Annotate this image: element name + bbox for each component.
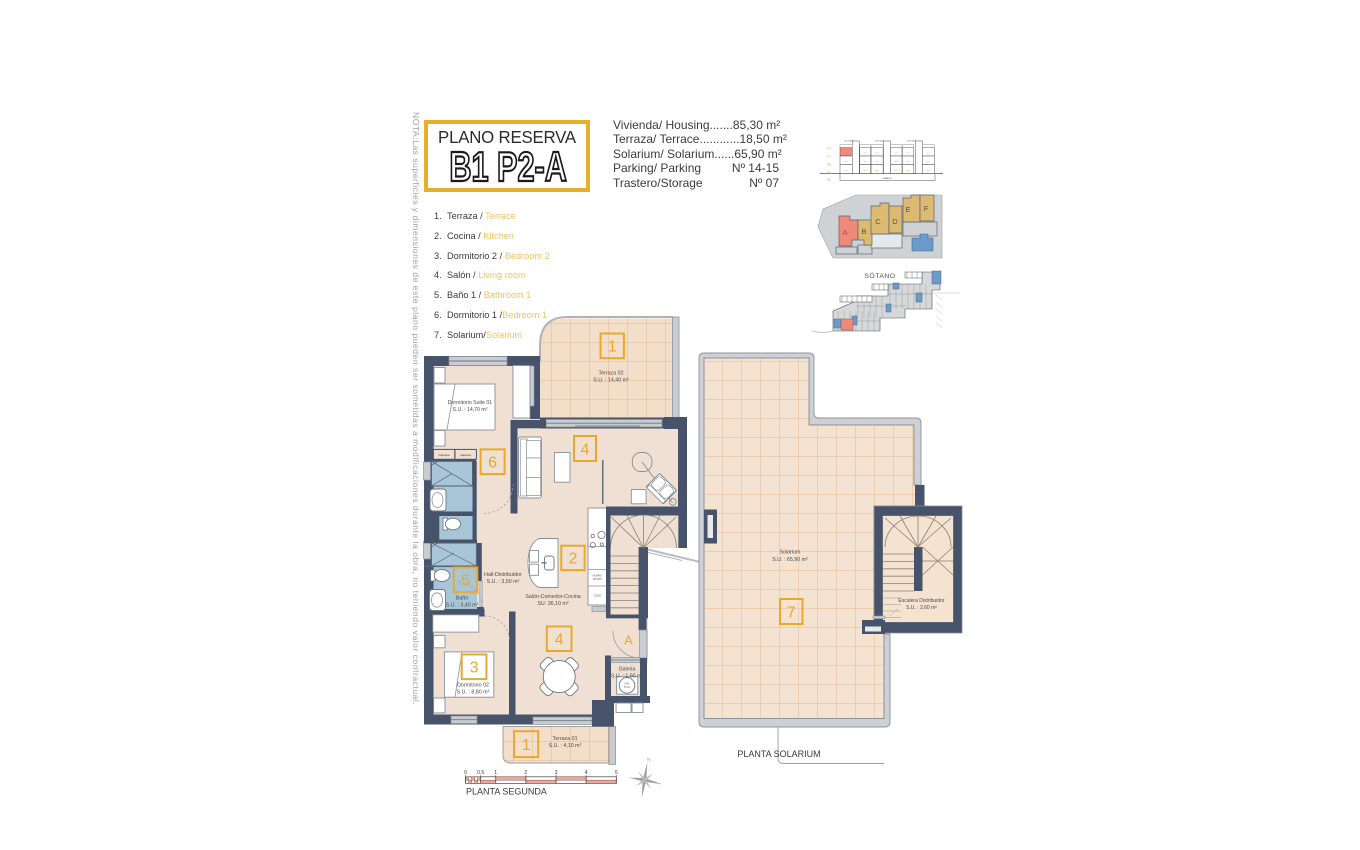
- svg-text:N: N: [647, 757, 651, 762]
- svg-text:Escalera Distribuidor: Escalera Distribuidor: [898, 598, 944, 604]
- svg-text:PS: PS: [827, 171, 831, 175]
- svg-text:Solarium: Solarium: [780, 550, 801, 556]
- svg-text:S.U. : 14,70 m²: S.U. : 14,70 m²: [453, 407, 488, 413]
- svg-text:Baño: Baño: [456, 596, 468, 602]
- svg-text:P2: P2: [827, 147, 831, 151]
- svg-text:C: C: [875, 217, 881, 226]
- svg-text:SU: 36,10 m²: SU: 36,10 m²: [537, 601, 568, 607]
- svg-text:Terraza 02: Terraza 02: [598, 371, 623, 377]
- svg-text:1: 1: [608, 339, 617, 356]
- svg-text:SÓTANO: SÓTANO: [864, 271, 895, 280]
- svg-text:PLANTA SOLARIUM: PLANTA SOLARIUM: [737, 749, 820, 759]
- svg-text:S.U. : 8,80 m²: S.U. : 8,80 m²: [457, 690, 490, 696]
- svg-text:S.U. : 2,60 m²: S.U. : 2,60 m²: [906, 605, 937, 611]
- svg-text:6: 6: [488, 455, 497, 472]
- svg-text:2: 2: [568, 551, 577, 568]
- svg-text:S.U. : 3,50 m²: S.U. : 3,50 m²: [487, 579, 520, 585]
- svg-text:D: D: [892, 217, 898, 226]
- svg-text:1: 1: [494, 770, 497, 776]
- svg-text:E: E: [905, 205, 910, 214]
- svg-text:0: 0: [464, 770, 467, 776]
- svg-text:8 KG: 8 KG: [624, 685, 630, 689]
- svg-text:3: 3: [555, 770, 558, 776]
- svg-text:7: 7: [787, 604, 796, 621]
- svg-text:MICRO: MICRO: [593, 577, 602, 581]
- svg-text:0.5: 0.5: [477, 770, 484, 776]
- svg-text:F: F: [924, 204, 929, 213]
- svg-text:3: 3: [470, 660, 479, 677]
- svg-text:1: 1: [522, 737, 531, 754]
- svg-text:sótano: sótano: [882, 176, 891, 180]
- svg-text:S.U. : 3,40 m²: S.U. : 3,40 m²: [446, 603, 479, 609]
- svg-text:Hall-Distribuidor: Hall-Distribuidor: [484, 572, 522, 578]
- svg-text:Cajonera: Cajonera: [460, 453, 471, 457]
- svg-text:4: 4: [555, 632, 564, 649]
- svg-text:5: 5: [461, 573, 470, 590]
- svg-text:5: 5: [615, 770, 618, 776]
- svg-text:S.U. : 1,90 m²: S.U. : 1,90 m²: [611, 674, 643, 680]
- svg-text:Dormitorio 02: Dormitorio 02: [457, 683, 489, 689]
- svg-text:A: A: [842, 228, 847, 237]
- svg-text:CONG: CONG: [594, 594, 602, 598]
- svg-text:A: A: [624, 634, 633, 648]
- svg-text:P1: P1: [827, 155, 831, 159]
- svg-text:4: 4: [585, 770, 588, 776]
- svg-text:Cajonera: Cajonera: [439, 453, 450, 457]
- svg-text:4: 4: [581, 441, 590, 458]
- svg-text:S.U. : 4,10 m²: S.U. : 4,10 m²: [549, 743, 582, 749]
- svg-text:LAV.: LAV.: [624, 682, 629, 686]
- svg-text:PLANTA SEGUNDA: PLANTA SEGUNDA: [466, 787, 547, 797]
- svg-text:Dormitorio Suite 01: Dormitorio Suite 01: [448, 400, 493, 406]
- svg-text:BLOQUE: BLOQUE: [875, 141, 885, 143]
- svg-text:BLOQUE: BLOQUE: [844, 141, 854, 143]
- svg-text:B: B: [861, 227, 866, 236]
- svg-text:Galeria: Galeria: [619, 667, 636, 673]
- svg-text:Terraza 01: Terraza 01: [552, 736, 577, 742]
- svg-text:PB: PB: [827, 163, 831, 167]
- svg-text:Salón-Comedor-Cocina: Salón-Comedor-Cocina: [525, 594, 580, 600]
- svg-text:PS: PS: [827, 178, 831, 182]
- svg-text:S.U. : 65,90 m²: S.U. : 65,90 m²: [772, 557, 808, 563]
- svg-text:2: 2: [524, 770, 527, 776]
- svg-text:BLOQUE: BLOQUE: [907, 141, 917, 143]
- svg-text:S.U. : 14,40 m²: S.U. : 14,40 m²: [593, 378, 629, 384]
